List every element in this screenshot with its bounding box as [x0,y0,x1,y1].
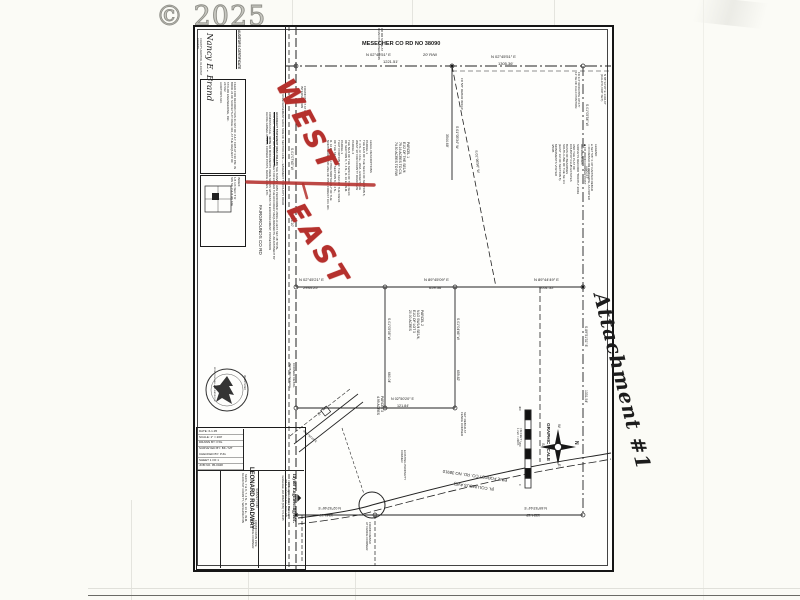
scanned-survey-plat-page: © 2025 DATE: 6-1-95SCALE: 1″ = 200′DRAWN… [0,0,800,600]
red-annotation-marks [0,0,800,600]
